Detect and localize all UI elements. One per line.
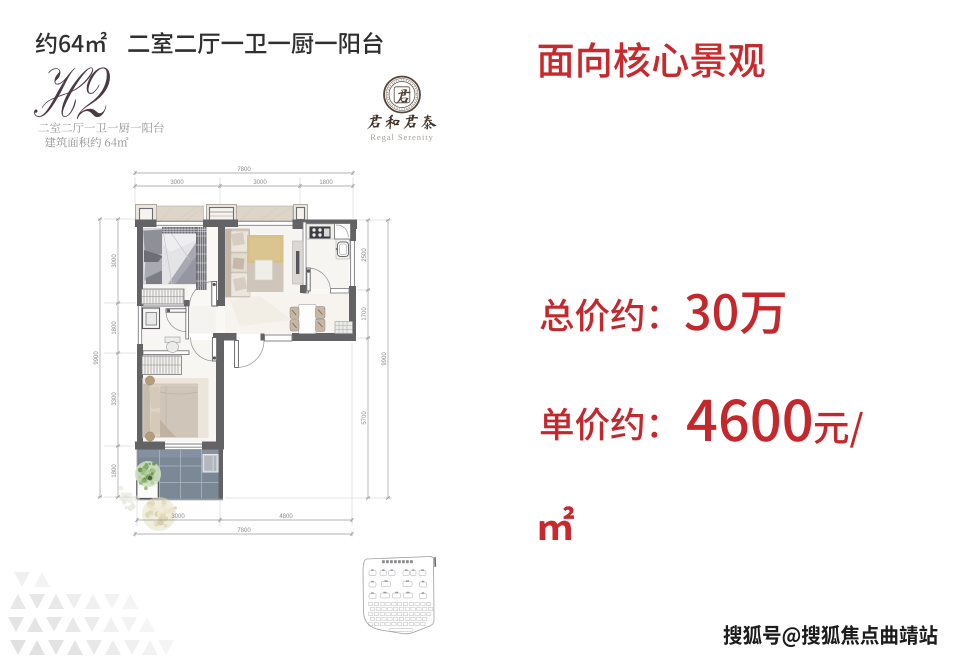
svg-text:3300: 3300 [112, 392, 118, 406]
svg-text:5700: 5700 [362, 411, 368, 425]
svg-text:1700: 1700 [362, 307, 368, 321]
svg-text:7800: 7800 [237, 167, 251, 173]
svg-text:1800: 1800 [112, 321, 118, 335]
svg-text:3000: 3000 [171, 514, 185, 520]
svg-text:3000: 3000 [253, 180, 267, 186]
svg-text:9900: 9900 [94, 351, 100, 365]
svg-text:4800: 4800 [279, 514, 293, 520]
svg-text:1800: 1800 [112, 464, 118, 478]
svg-text:1800: 1800 [319, 180, 333, 186]
svg-text:3000: 3000 [170, 180, 184, 186]
svg-text:Regal Serenity: Regal Serenity [370, 132, 433, 142]
svg-text:7800: 7800 [237, 528, 251, 534]
svg-text:3000: 3000 [112, 254, 118, 268]
svg-text:9900: 9900 [382, 352, 388, 366]
svg-text:2500: 2500 [362, 248, 368, 262]
